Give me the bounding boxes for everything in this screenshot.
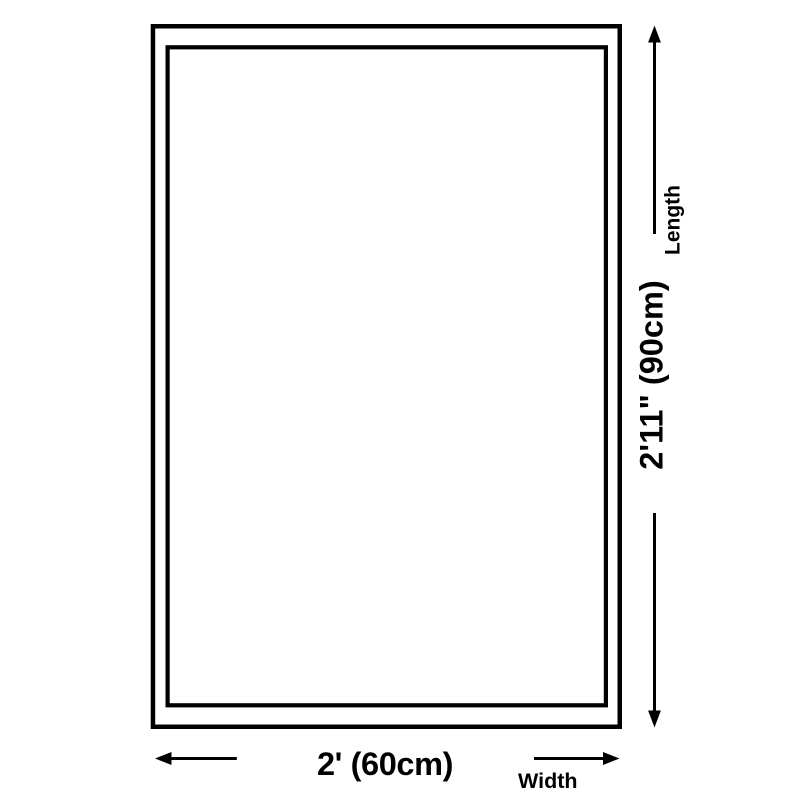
svg-text:2' (60cm): 2' (60cm): [317, 746, 453, 782]
svg-text:Length: Length: [662, 185, 685, 255]
svg-text:Width: Width: [518, 769, 578, 793]
svg-text:2'11" (90cm): 2'11" (90cm): [634, 280, 670, 469]
